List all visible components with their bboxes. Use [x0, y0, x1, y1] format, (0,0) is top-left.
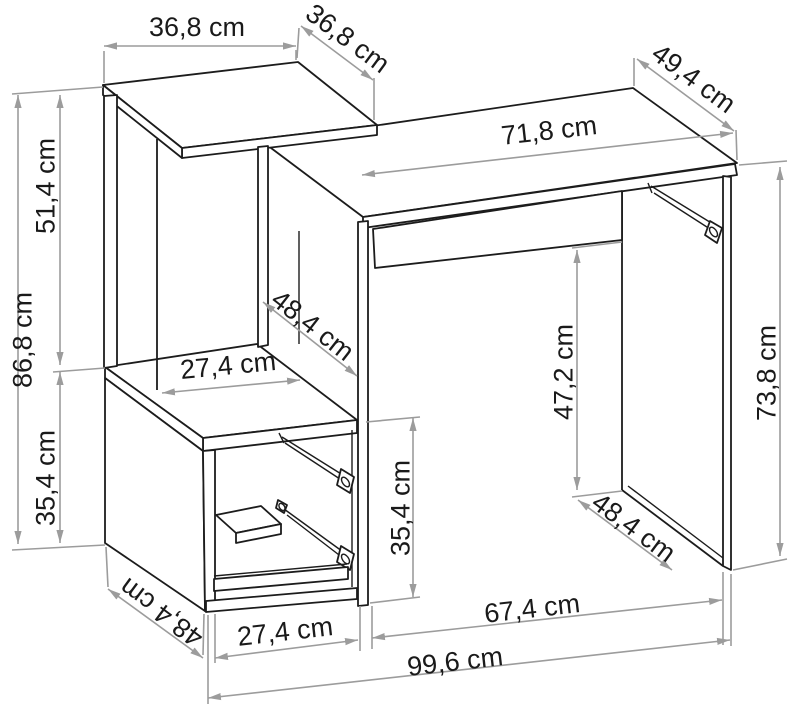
upper-left-panel — [104, 95, 157, 390]
rail-edge-bottom — [287, 515, 343, 558]
rail-edge-bottom — [654, 193, 710, 229]
rail-edge-top — [651, 186, 713, 224]
dimension-diagram: 36,8 cm 36,8 cm 49,4 cm 71,8 cm 86,8 cm … — [0, 0, 800, 716]
drawer-shelf-board — [216, 506, 281, 543]
rail-edge-top — [282, 437, 346, 477]
desk-middle-panel — [358, 221, 368, 606]
diagram-canvas: 36,8 cm 36,8 cm 49,4 cm 71,8 cm 86,8 cm … — [0, 0, 800, 716]
label-shelf-top-width: 36,8 cm — [149, 12, 245, 42]
desk-right-panel-outer-edge — [723, 176, 731, 570]
label-knee-space-width: 67,4 cm — [483, 588, 582, 629]
rail-edge-top — [284, 509, 346, 554]
label-total-width: 99,6 cm — [406, 641, 505, 682]
label-drawer-space-height: 35,4 cm — [386, 460, 416, 556]
lower-drawer-rail — [276, 500, 354, 570]
label-knee-space-height: 47,2 cm — [549, 324, 579, 420]
label-cabinet-interior-width: 27,4 cm — [236, 611, 335, 652]
upper-left-panel-front-edge — [104, 95, 117, 368]
upper-drawer-rail — [279, 433, 354, 493]
right-slide-rail — [648, 183, 722, 243]
label-shelf-unit-height: 51,4 cm — [31, 138, 61, 234]
label-cabinet-height-left: 35,4 cm — [31, 430, 61, 526]
rail-edge-bottom — [285, 443, 343, 481]
label-total-left-height: 86,8 cm — [8, 292, 38, 388]
label-desk-side-height: 73,8 cm — [752, 325, 782, 421]
label-shelf-interior-depth: 48,4 cm — [266, 284, 360, 367]
upper-right-panel — [258, 146, 268, 347]
label-shelf-top-depth: 36,8 cm — [300, 0, 395, 79]
cabinet-bottom-front — [206, 588, 357, 612]
